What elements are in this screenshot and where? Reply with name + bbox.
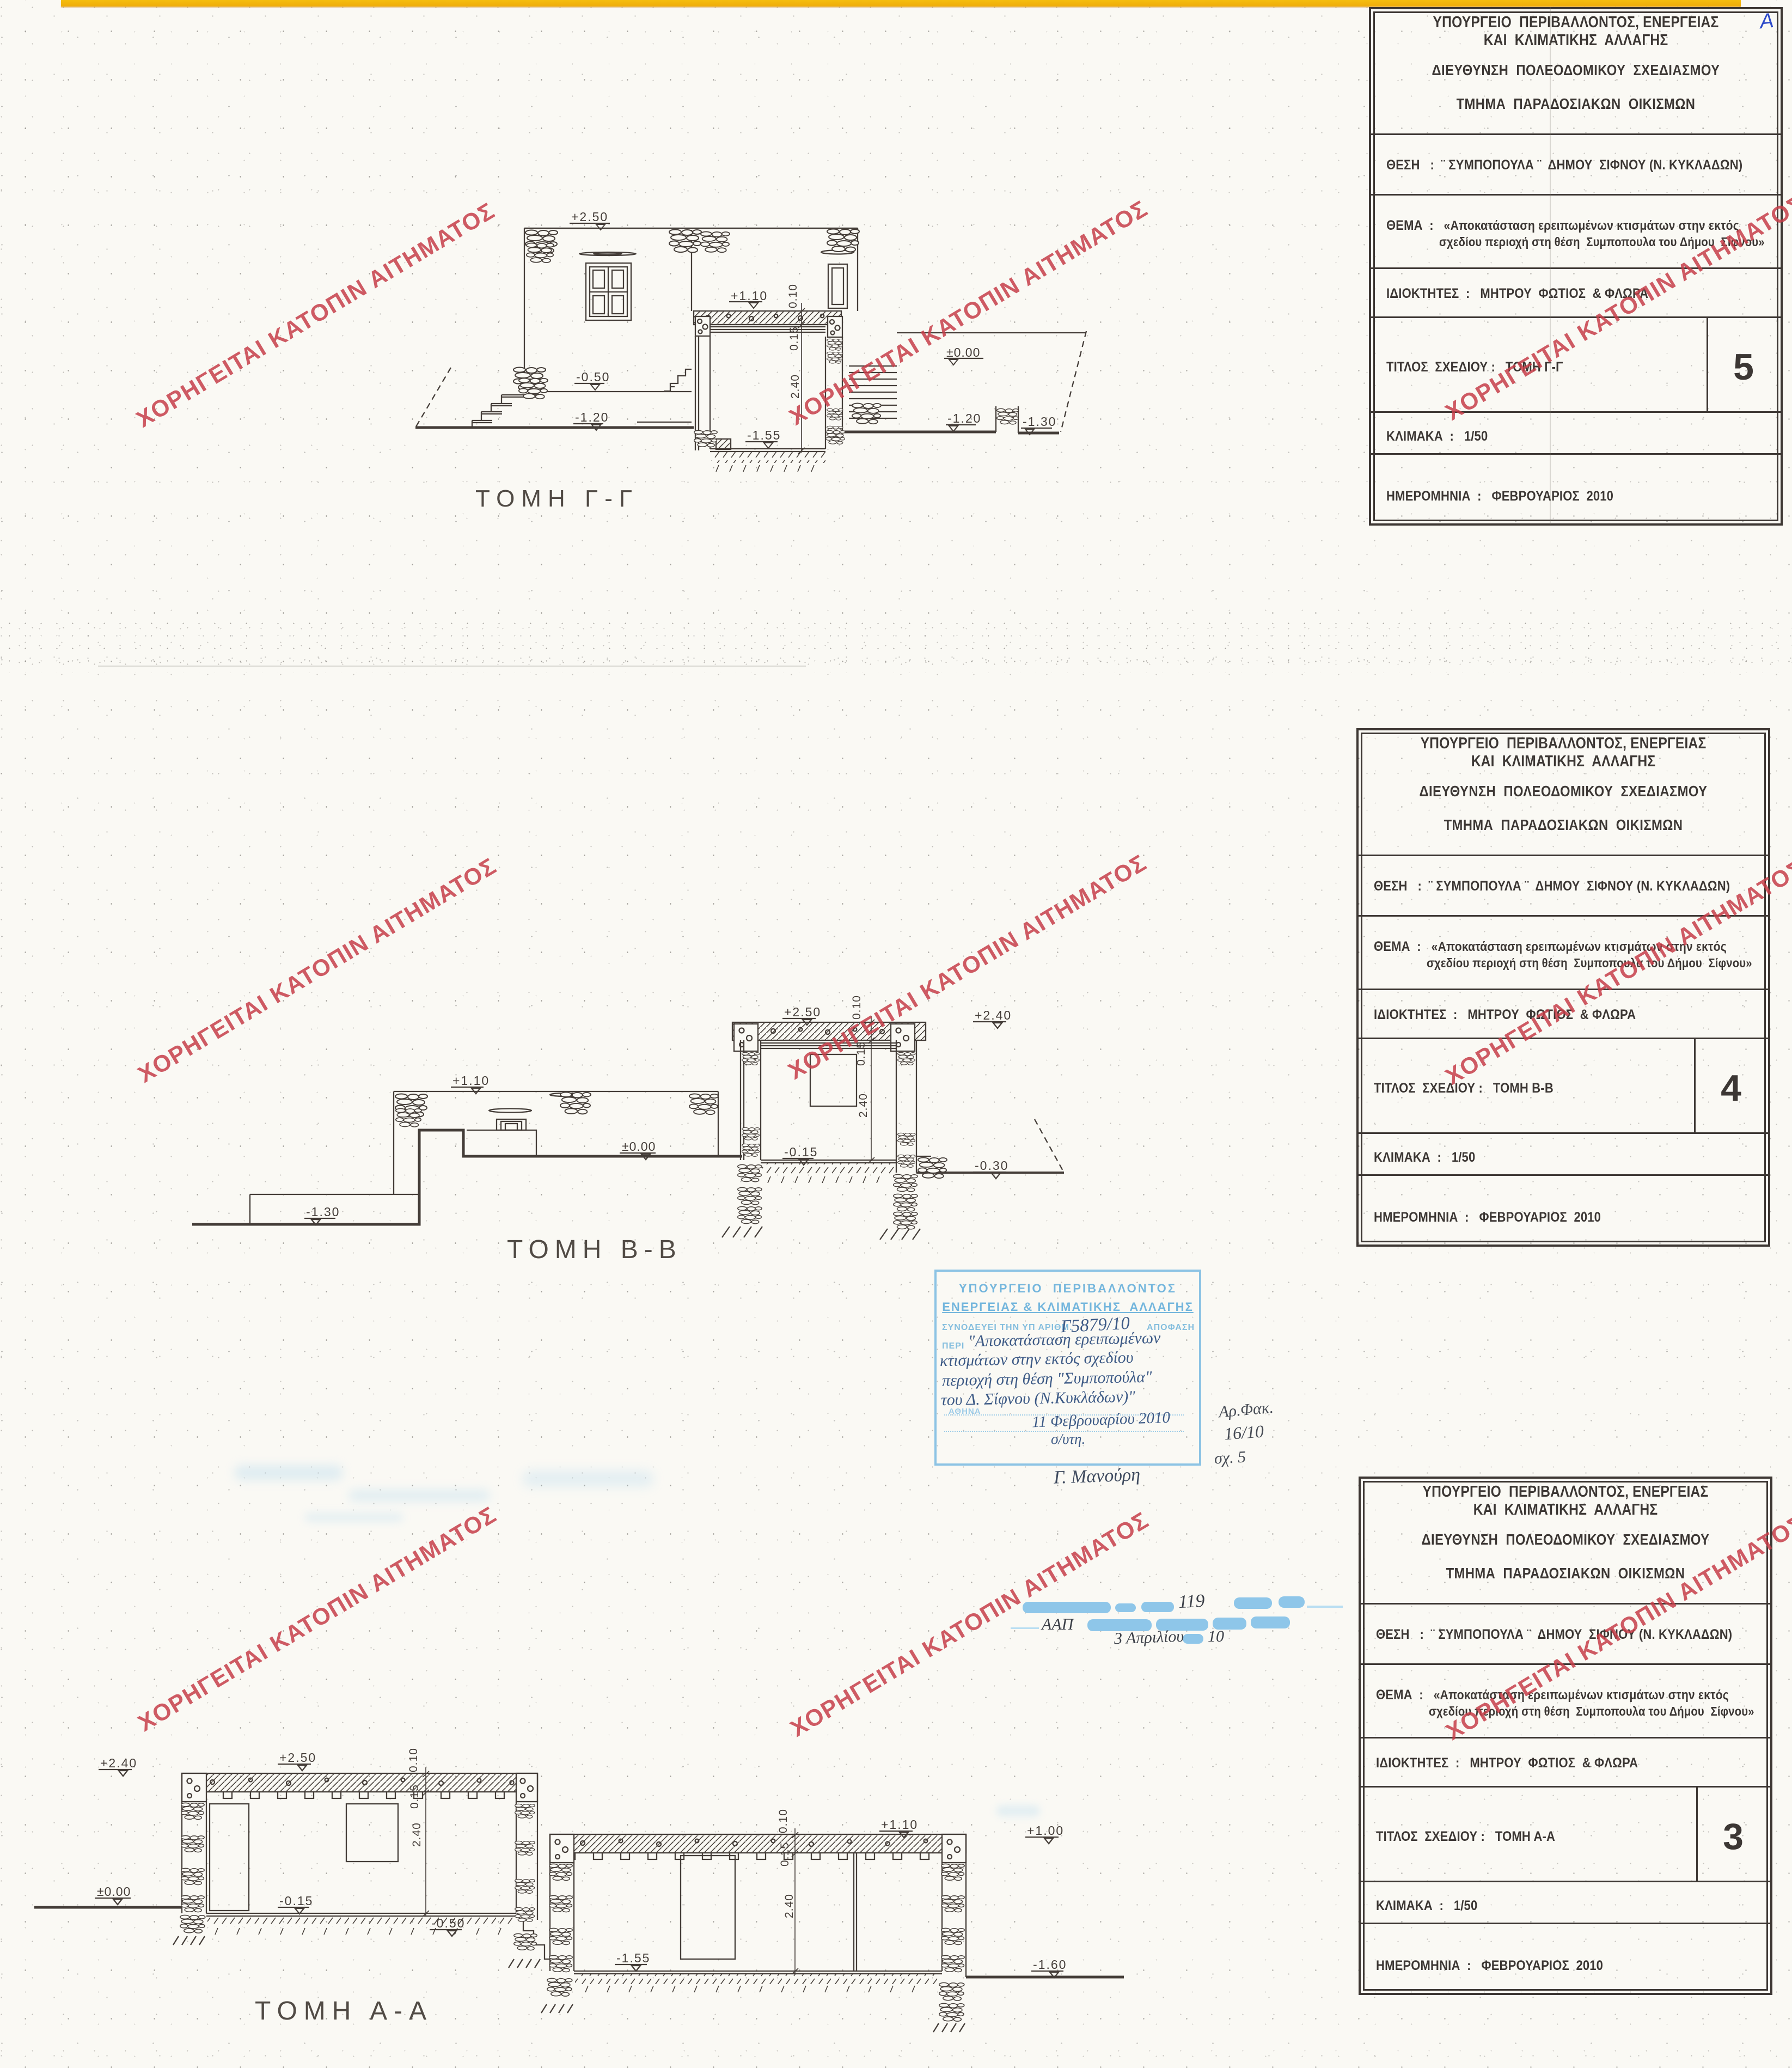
svg-text:+1.00: +1.00 [1027,1823,1064,1838]
svg-text:+2.50: +2.50 [279,1750,316,1765]
svg-text:-0.30: -0.30 [975,1158,1008,1173]
svg-text:-0.50: -0.50 [576,370,610,384]
svg-text:-1.20: -1.20 [575,410,609,424]
svg-text:0.15: 0.15 [788,326,800,351]
svg-text:2.40: 2.40 [783,1894,796,1918]
svg-text:-1.20: -1.20 [947,411,981,425]
svg-text:-0.50: -0.50 [431,1916,465,1930]
svg-text:+2.50: +2.50 [784,1005,821,1019]
svg-text:ΤΟΜΗ Γ-Γ: ΤΟΜΗ Γ-Γ [475,485,639,512]
svg-text:-1.55: -1.55 [747,428,781,442]
svg-text:-0.15: -0.15 [784,1145,818,1159]
svg-text:ΤΟΜΗ Β-Β: ΤΟΜΗ Β-Β [507,1235,682,1264]
svg-text:+2.40: +2.40 [975,1008,1012,1022]
svg-text:0.10: 0.10 [787,284,799,308]
svg-text:0.10: 0.10 [777,1809,790,1833]
svg-text:0.10: 0.10 [407,1748,420,1772]
svg-text:2.40: 2.40 [411,1822,423,1847]
svg-text:+2.50: +2.50 [571,210,608,224]
svg-text:2.40: 2.40 [789,374,802,399]
svg-text:+1.10: +1.10 [881,1817,918,1832]
svg-text:0.15: 0.15 [408,1784,421,1809]
svg-text:-1.60: -1.60 [1033,1957,1067,1972]
svg-text:ΤΟΜΗ Α-Α: ΤΟΜΗ Α-Α [255,1997,433,2026]
svg-text:-1.30: -1.30 [1023,414,1056,429]
svg-text:+1.10: +1.10 [452,1073,490,1088]
svg-text:-1.30: -1.30 [306,1205,340,1219]
svg-text:0.15: 0.15 [779,1842,791,1866]
svg-text:+2.40: +2.40 [100,1756,137,1770]
svg-text:2.40: 2.40 [857,1093,870,1118]
svg-text:±0.00: ±0.00 [97,1884,131,1899]
svg-text:-1.55: -1.55 [616,1951,650,1965]
svg-text:-0.15: -0.15 [279,1894,313,1908]
svg-text:+1.10: +1.10 [731,289,768,303]
svg-text:±0.00: ±0.00 [622,1139,656,1154]
svg-text:±0.00: ±0.00 [946,345,980,359]
